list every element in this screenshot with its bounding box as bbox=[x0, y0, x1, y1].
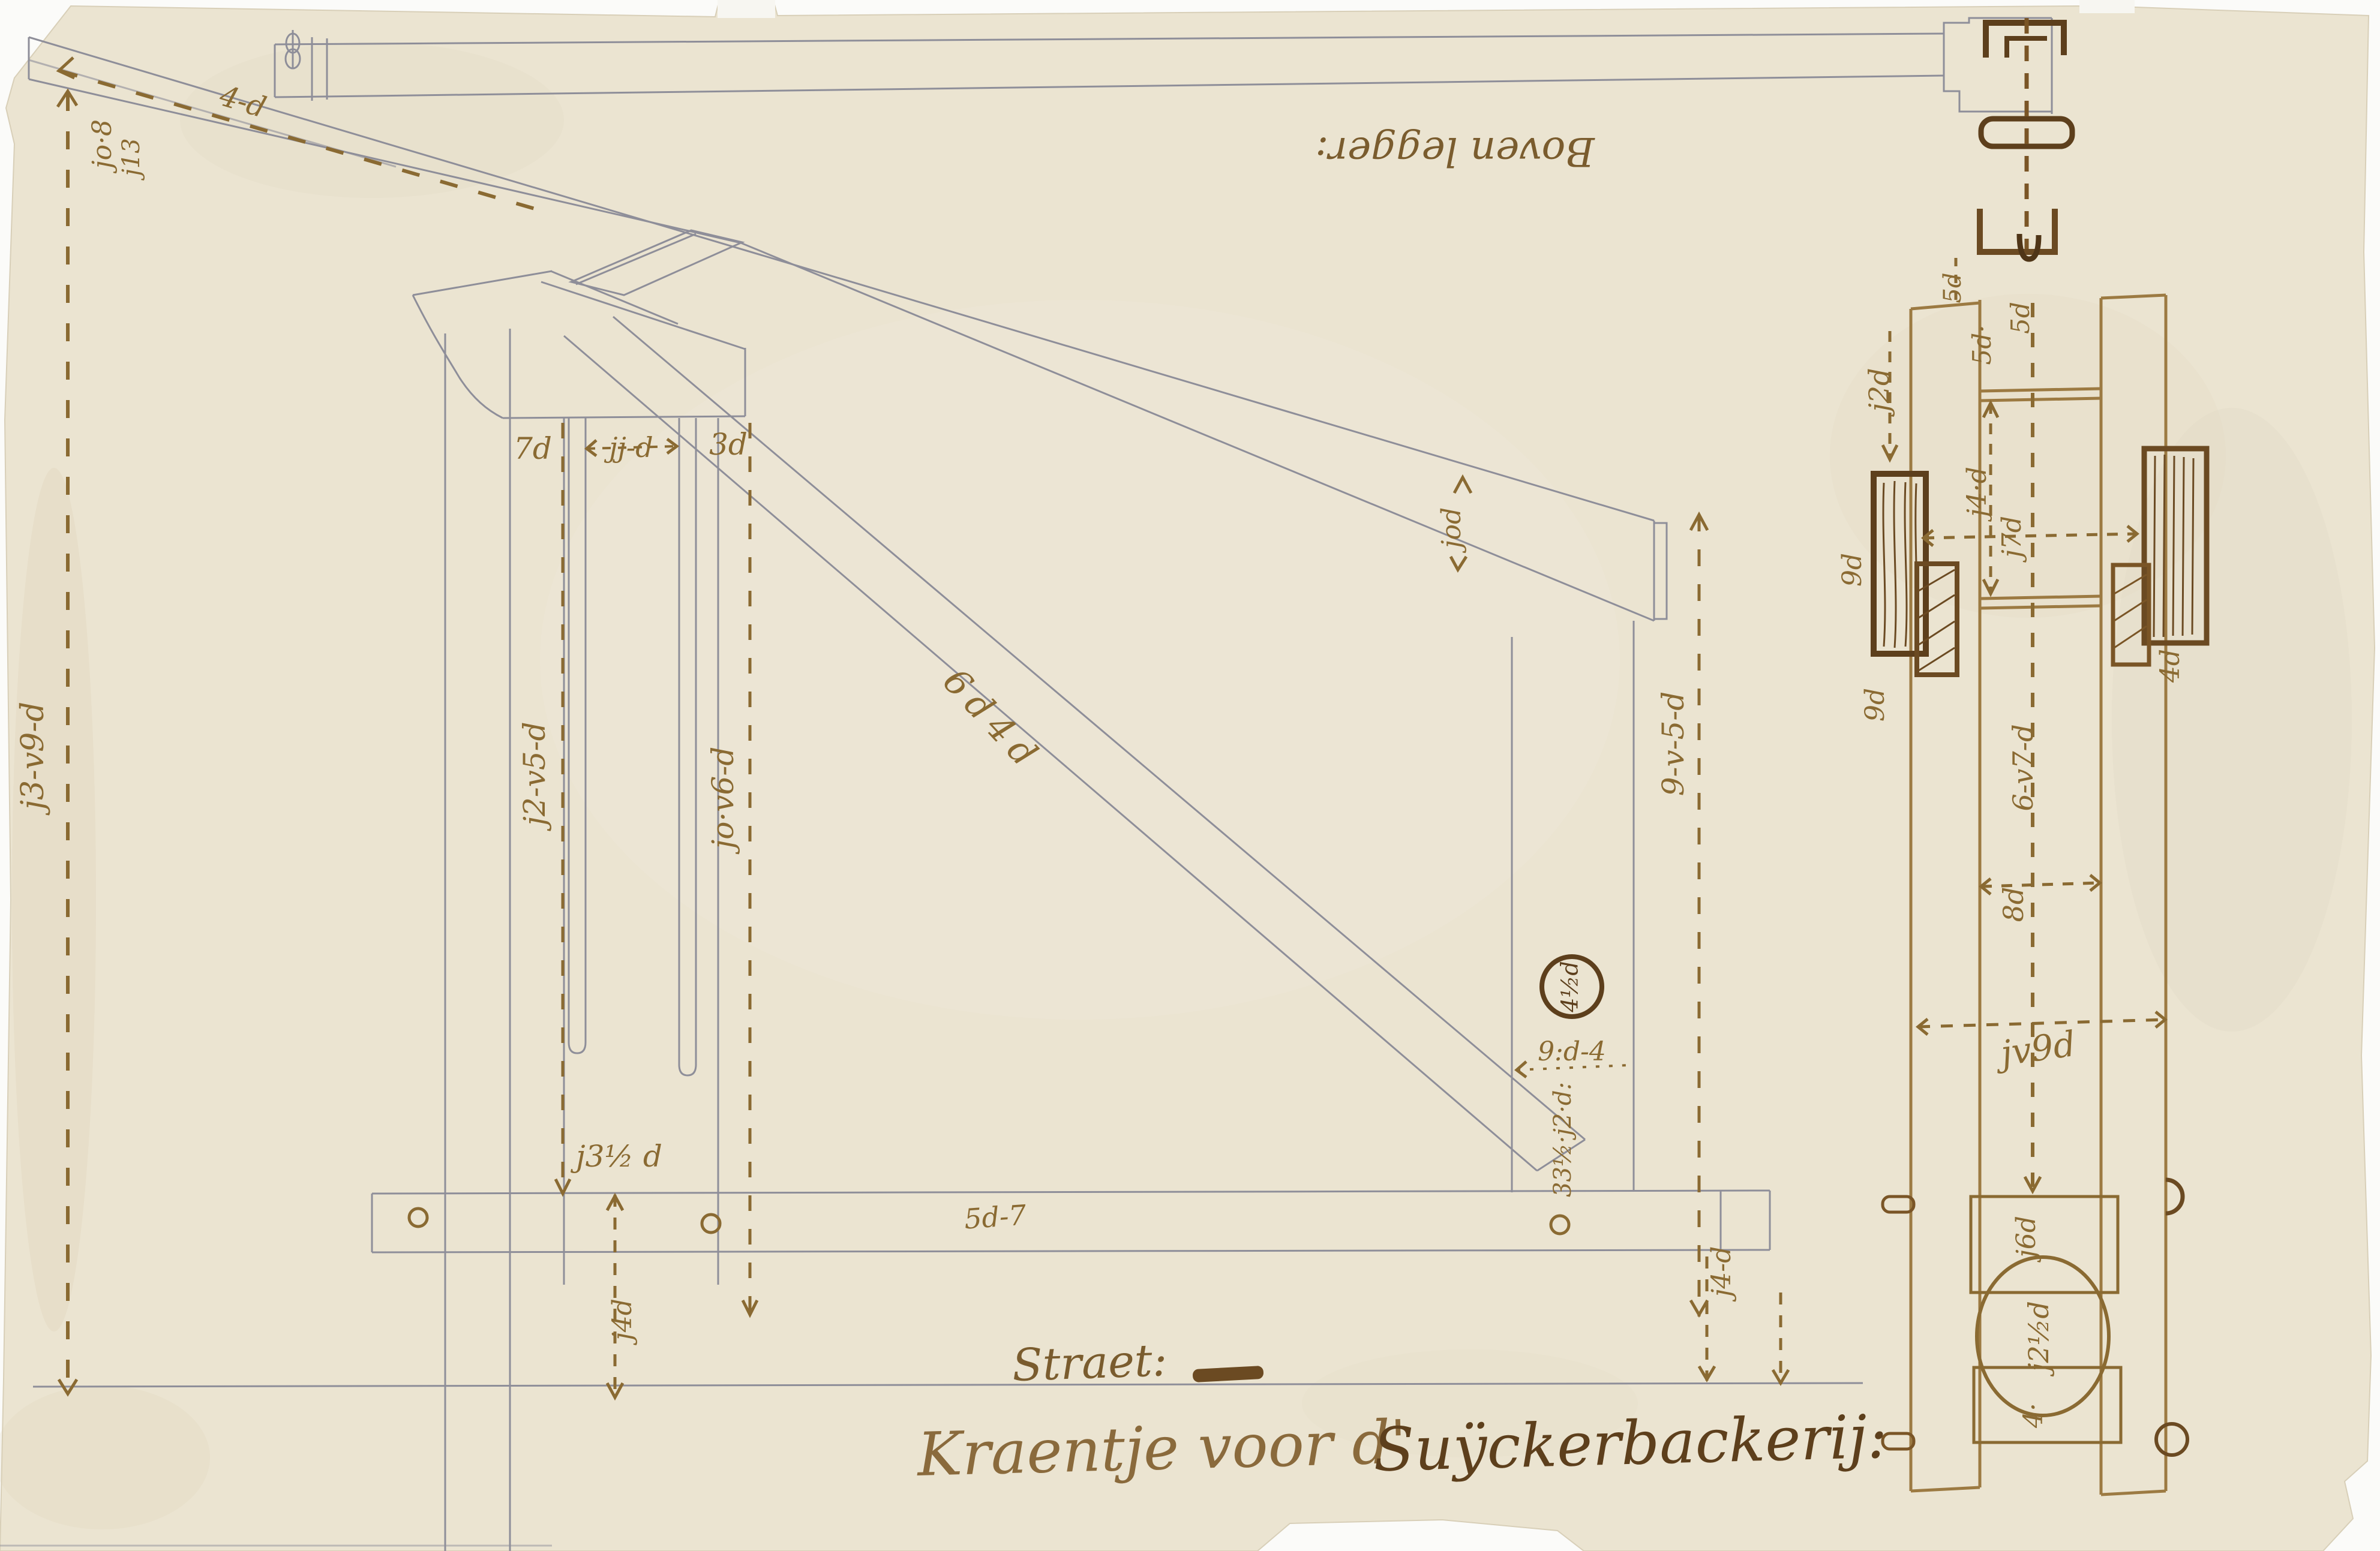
dim-under-right: j4-d bbox=[1706, 1246, 1737, 1303]
dim-width: j7d bbox=[1997, 516, 2027, 563]
dim-top-a: 5d· bbox=[1967, 325, 1997, 365]
dim-base-mid: 5d-7 bbox=[963, 1198, 1028, 1235]
dim-lower-block: 4· bbox=[2018, 1403, 2049, 1429]
dim-mast-left: j2-v5-d bbox=[517, 722, 552, 831]
dim-left-height: j3-v9-d bbox=[15, 702, 51, 816]
dim-tip-b: j13 bbox=[118, 138, 145, 181]
backing-scrap-right bbox=[2079, 0, 2135, 13]
dim-left-rail: j2d bbox=[1863, 368, 1895, 417]
top-beam-title: Boven legger: bbox=[1315, 128, 1595, 175]
dim-wheel: j2½d bbox=[2022, 1301, 2055, 1377]
dim-channel-width: 8d bbox=[1997, 887, 2030, 922]
caption-part1: Kraentje voor d' bbox=[916, 1407, 1408, 1490]
dim-mast-right: jo·v6-d bbox=[706, 747, 740, 855]
dim-right-block: 4d bbox=[2155, 649, 2186, 683]
dim-top-b: 5d bbox=[2006, 302, 2035, 334]
dim-rung-gap: j4·d bbox=[1962, 467, 1992, 522]
drawing-sheet: Boven legger: bbox=[0, 0, 2380, 1551]
dim-cap-right: 3d bbox=[709, 427, 748, 462]
dim-neck: 5d bbox=[1939, 272, 1967, 303]
dim-tip-a: jo·8 bbox=[87, 119, 118, 174]
dim-under-left: j4d bbox=[607, 1298, 638, 1346]
street-label: Straet: bbox=[1012, 1334, 1168, 1391]
dim-jib-end: jod bbox=[1436, 507, 1467, 554]
backing-scrap-left bbox=[718, 0, 775, 18]
dim-mid-length: 6-v7-d bbox=[2007, 724, 2039, 811]
dim-cap-mid: jj-d bbox=[604, 431, 653, 464]
dim-cap-left: 7d bbox=[514, 431, 552, 466]
dim-post-gap: 9:d-4 bbox=[1538, 1036, 1606, 1067]
dim-circled: 4½d bbox=[1557, 961, 1583, 1012]
dim-right-height: 9-v-5-d bbox=[1656, 692, 1691, 796]
caption-part2: Suÿckerbackerij: bbox=[1373, 1402, 1889, 1485]
dim-post-stack: 33½·j2·d: bbox=[1549, 1082, 1577, 1197]
dim-base-left: j3½ d bbox=[570, 1139, 662, 1174]
dim-left-block-a: 9d bbox=[1837, 553, 1868, 587]
dim-left-block-b: 9d bbox=[1860, 688, 1890, 722]
dim-upper-block: j6d bbox=[2011, 1216, 2042, 1263]
